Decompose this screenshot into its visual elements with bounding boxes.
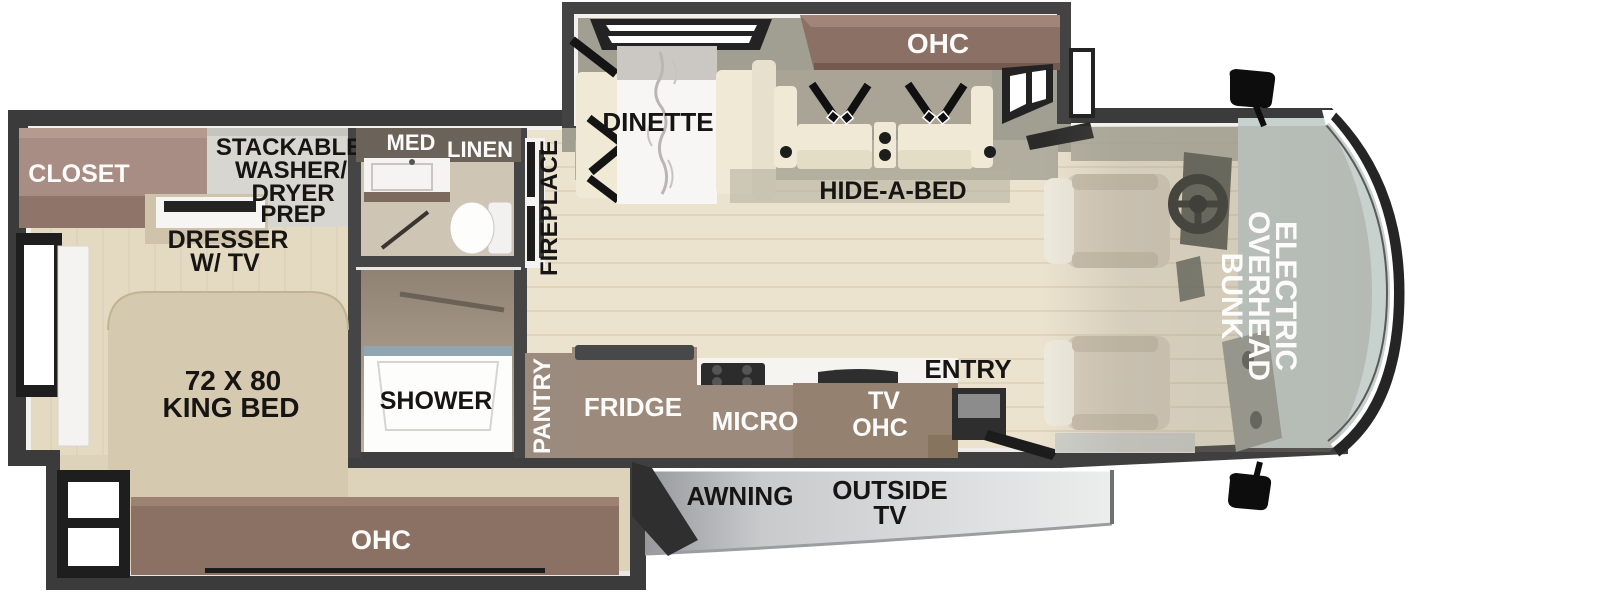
svg-text:CLOSET: CLOSET <box>28 160 129 188</box>
svg-text:OHC: OHC <box>351 525 411 555</box>
svg-text:BUNK: BUNK <box>1215 253 1248 340</box>
svg-text:OHC: OHC <box>907 28 969 59</box>
svg-text:PANTRY: PANTRY <box>529 358 556 454</box>
svg-text:W/ TV: W/ TV <box>190 249 260 277</box>
svg-text:OHC: OHC <box>852 414 908 442</box>
svg-text:LINEN: LINEN <box>447 137 513 162</box>
svg-text:AWNING: AWNING <box>687 481 794 511</box>
svg-text:TV: TV <box>873 500 907 530</box>
svg-text:SHOWER: SHOWER <box>380 387 493 415</box>
svg-text:KING BED: KING BED <box>163 392 300 423</box>
svg-text:FIREPLACE: FIREPLACE <box>536 140 563 276</box>
svg-text:PREP: PREP <box>260 201 325 228</box>
svg-text:DINETTE: DINETTE <box>602 107 713 137</box>
svg-text:HIDE-A-BED: HIDE-A-BED <box>819 177 966 205</box>
svg-text:TV: TV <box>868 387 900 415</box>
svg-text:MICRO: MICRO <box>712 406 799 436</box>
svg-text:ENTRY: ENTRY <box>924 354 1011 384</box>
svg-text:MED: MED <box>387 130 436 155</box>
svg-text:FRIDGE: FRIDGE <box>584 392 682 422</box>
